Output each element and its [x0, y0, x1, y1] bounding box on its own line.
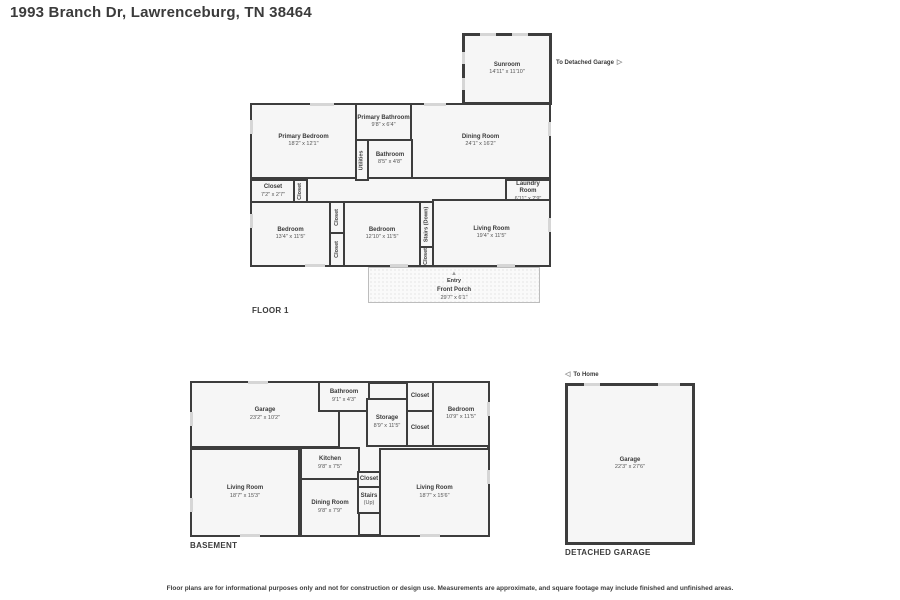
room-dims: 9'8" x 7'9": [318, 508, 342, 515]
room-label: Living Room 18'7" x 15'6": [416, 485, 452, 499]
left-arrow-icon: ◁: [565, 371, 570, 378]
room-basement-bedroom: Bedroom 10'9" x 11'5": [432, 381, 490, 447]
room-name: Primary Bathroom: [357, 115, 409, 123]
window-marker: [487, 402, 490, 416]
detached-garage-label: DETACHED GARAGE: [565, 548, 651, 557]
room-label: Closet: [297, 183, 304, 200]
room-bathroom: Bathroom 8'5" x 4'8": [367, 139, 413, 179]
window-marker: [240, 534, 260, 537]
room-living-room: Living Room 19'4" x 11'5": [432, 199, 551, 267]
room-name: Bathroom: [376, 152, 404, 160]
window-marker: [420, 534, 440, 537]
room-dims: 9'1" x 4'3": [332, 397, 356, 404]
room-dims: 18'7" x 15'3": [230, 493, 260, 500]
room-label: Kitchen 9'8" x 7'5": [318, 456, 342, 470]
window-marker: [310, 103, 334, 106]
room-name: Closet: [411, 393, 429, 401]
room-label: Closet: [411, 425, 429, 433]
room-dims: (Up): [364, 500, 375, 507]
room-label: Closet: [423, 248, 430, 265]
room-dims: 24'1" x 16'2": [465, 141, 495, 148]
room-detached-garage: Garage 22'3" x 27'6": [565, 383, 695, 545]
room-name: Front Porch: [437, 287, 471, 295]
room-label: Dining Room 9'8" x 7'9": [311, 500, 348, 514]
room-name: Garage: [255, 407, 276, 415]
room-name: Closet: [360, 476, 378, 484]
window-marker: [190, 412, 193, 426]
room-label: Bathroom 8'5" x 4'8": [376, 152, 404, 166]
window-marker: [305, 264, 325, 267]
room-label: Primary Bedroom 18'2" x 12'1": [278, 134, 328, 148]
room-dims: 7'2" x 2'7": [261, 192, 285, 199]
room-dims: 10'9" x 11'5": [446, 414, 476, 421]
room-name: Storage: [376, 415, 398, 423]
room-label: Sunroom 14'11" x 11'10": [489, 62, 524, 76]
room-label: Closet: [411, 393, 429, 401]
window-marker: [462, 78, 465, 90]
window-marker: [497, 264, 515, 267]
room-label: Bathroom 9'1" x 4'3": [330, 389, 358, 403]
room-dims: 9'8" x 7'5": [318, 464, 342, 471]
floor1-label: FLOOR 1: [252, 306, 289, 315]
room-basement-closet-a: Closet: [406, 381, 434, 412]
right-arrow-icon: ▷: [617, 59, 622, 66]
room-basement-bathroom: Bathroom 9'1" x 4'3": [318, 381, 370, 412]
room-name: Garage: [620, 457, 641, 465]
room-basement-living-left: Living Room 18'7" x 15'3": [190, 448, 300, 537]
entry-arrow-icon: ▲: [451, 271, 457, 277]
room-name: Living Room: [473, 226, 509, 234]
to-home-text: To Home: [573, 372, 598, 378]
room-basement-kitchen: Kitchen 9'8" x 7'5": [300, 447, 360, 480]
room-dims: 22'3" x 27'6": [615, 464, 645, 471]
room-name: Bedroom: [369, 227, 395, 235]
room-name: Closet: [264, 184, 282, 192]
room-name: Closet: [334, 209, 341, 226]
room-name: Primary Bedroom: [278, 134, 328, 142]
room-basement-storage: Storage 8'9" x 11'5": [366, 398, 408, 447]
room-label: Stairs (Up): [361, 493, 378, 507]
room-label: Closet 7'2" x 2'7": [261, 184, 285, 198]
room-name: Sunroom: [494, 62, 520, 70]
room-dims: 29'7" x 6'1": [440, 295, 467, 302]
room-name: Living Room: [416, 485, 452, 493]
room-dims: 23'2" x 10'2": [250, 415, 280, 422]
room-name: Closet: [297, 183, 304, 200]
room-label: Bedroom 13'4" x 11'5": [276, 227, 306, 241]
room-label: Storage 8'9" x 11'5": [374, 415, 401, 429]
room-primary-bathroom: Primary Bathroom 9'8" x 6'4": [355, 103, 412, 141]
entry-label: Entry: [447, 278, 461, 284]
window-marker: [390, 264, 408, 267]
room-name: Bedroom: [448, 407, 474, 415]
window-marker: [548, 218, 551, 232]
room-bedroom-left: Bedroom 13'4" x 11'5": [250, 201, 331, 267]
room-name: Bedroom: [277, 227, 303, 235]
room-label: Garage 22'3" x 27'6": [615, 457, 645, 471]
room-dims: 12'10" x 11'5": [366, 234, 399, 241]
room-bedroom-right: Bedroom 12'10" x 11'5": [343, 201, 421, 267]
room-name: Dining Room: [311, 500, 348, 508]
room-label: Closet: [334, 209, 341, 226]
room-primary-bedroom: Primary Bedroom 18'2" x 12'1": [250, 103, 357, 179]
window-marker: [248, 381, 268, 384]
window-marker: [584, 383, 600, 386]
window-marker: [548, 122, 551, 136]
room-name: Closet: [411, 425, 429, 433]
room-label: Primary Bathroom 9'8" x 6'4": [357, 115, 409, 129]
room-dining-room: Dining Room 24'1" x 16'2": [410, 103, 551, 179]
window-marker: [250, 214, 253, 228]
window-marker: [512, 33, 528, 36]
room-dims: 18'7" x 15'6": [419, 493, 449, 500]
room-dims: 13'4" x 11'5": [276, 234, 306, 241]
window-marker: [250, 120, 253, 134]
room-dims: 18'2" x 12'1": [288, 141, 318, 148]
window-marker: [487, 470, 490, 484]
room-label: Bedroom 12'10" x 11'5": [366, 227, 399, 241]
window-marker: [658, 383, 680, 386]
room-label: Dining Room 24'1" x 16'2": [462, 134, 499, 148]
room-basement-dining: Dining Room 9'8" x 7'9": [300, 478, 360, 537]
room-basement-living-right: Living Room 18'7" x 15'6": [379, 448, 490, 537]
room-label: Living Room 19'4" x 11'5": [473, 226, 509, 240]
room-dims: 9'8" x 6'4": [371, 122, 395, 129]
room-name: Dining Room: [462, 134, 499, 142]
room-label: Garage 23'2" x 10'2": [250, 407, 280, 421]
to-detached-garage-text: To Detached Garage: [556, 60, 614, 66]
window-marker: [480, 33, 496, 36]
to-detached-garage-sign: To Detached Garage ▷: [556, 59, 622, 66]
room-label: Utilities: [359, 150, 366, 170]
room-label: Front Porch 29'7" x 6'1": [437, 287, 471, 301]
room-basement-stairs-up: Stairs (Up): [357, 486, 381, 514]
disclaimer-text: Floor plans are for informational purpos…: [0, 585, 900, 592]
room-label: Stairs (Down): [423, 207, 430, 242]
room-dims: 14'11" x 11'10": [489, 69, 524, 76]
floorplan-page: 1993 Branch Dr, Lawrenceburg, TN 38464 S…: [0, 0, 900, 600]
room-label: Living Room 18'7" x 15'3": [227, 485, 263, 499]
window-marker: [190, 498, 193, 512]
room-sunroom: Sunroom 14'11" x 11'10": [462, 33, 552, 105]
room-name: Kitchen: [319, 456, 341, 464]
to-home-sign: ◁ To Home: [565, 371, 599, 378]
basement-label: BASEMENT: [190, 541, 237, 550]
room-dims: 19'4" x 11'5": [477, 233, 507, 240]
room-label: Closet: [360, 476, 378, 484]
room-name: Stairs: [361, 493, 378, 501]
room-name: Stairs (Down): [423, 207, 430, 242]
room-name: Bathroom: [330, 389, 358, 397]
room-label: Closet: [334, 241, 341, 258]
room-name: Utilities: [359, 150, 366, 170]
window-marker: [462, 52, 465, 64]
room-label: Bedroom 10'9" x 11'5": [446, 407, 476, 421]
room-name: Closet: [423, 248, 430, 265]
room-name: Living Room: [227, 485, 263, 493]
front-porch: ▲ Entry Front Porch 29'7" x 6'1": [368, 267, 540, 303]
page-title: 1993 Branch Dr, Lawrenceburg, TN 38464: [10, 4, 312, 21]
room-name: Laundry Room: [507, 181, 549, 196]
window-marker: [424, 103, 446, 106]
room-basement-closet-b: Closet: [406, 410, 434, 447]
room-dims: 8'9" x 11'5": [374, 423, 401, 430]
room-name: Closet: [334, 241, 341, 258]
room-dims: 8'5" x 4'8": [378, 159, 402, 166]
